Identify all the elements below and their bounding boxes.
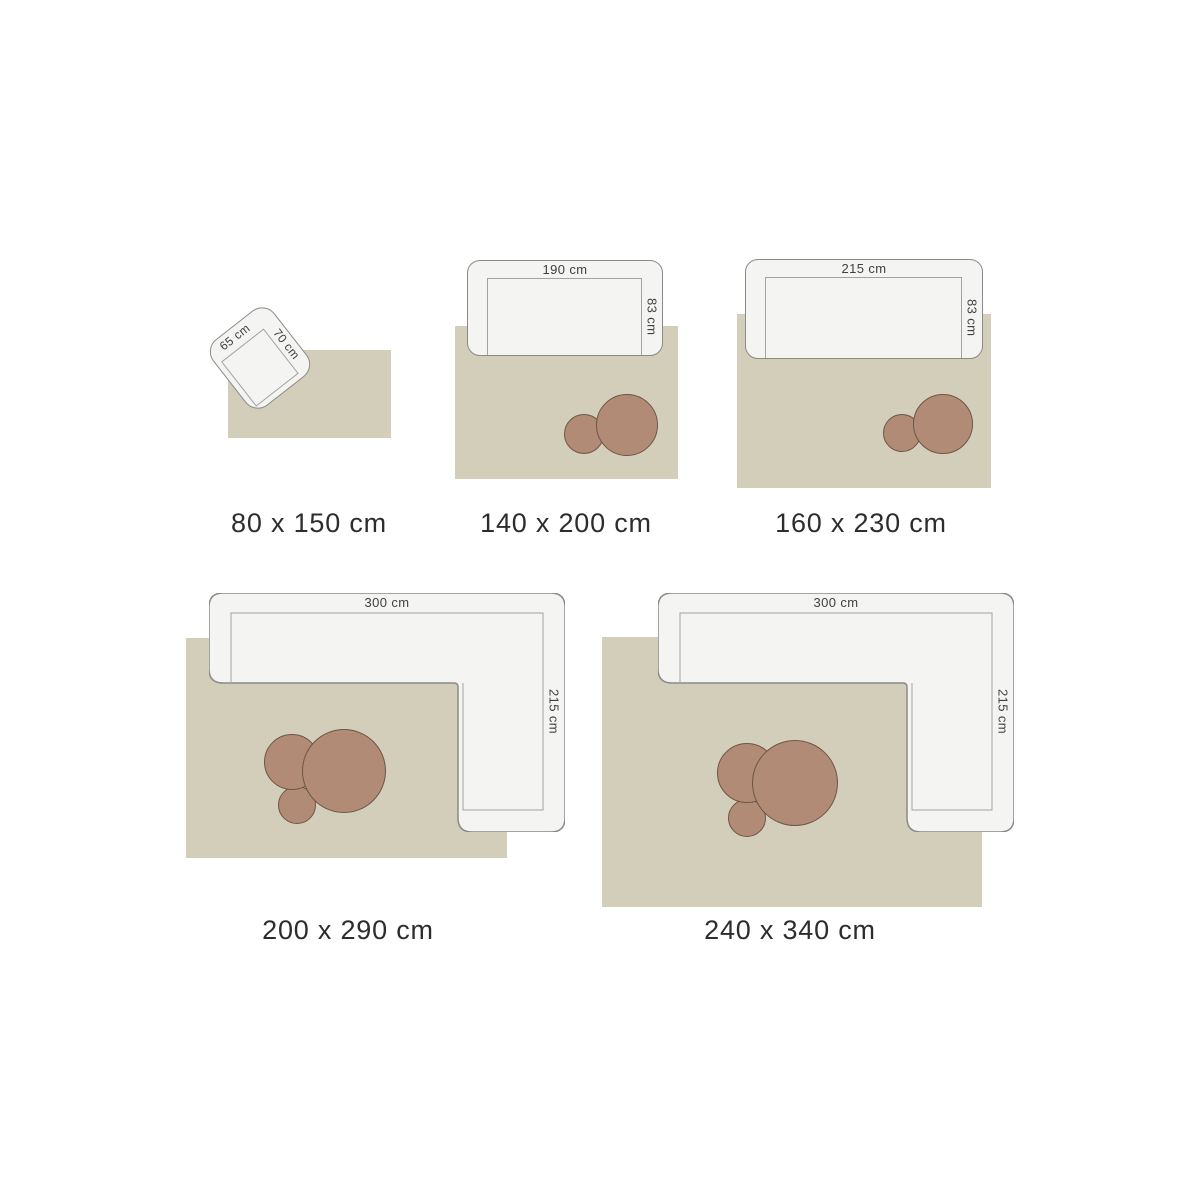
corner-sofa-shape	[209, 593, 565, 832]
sofa-seat-outline	[765, 277, 962, 358]
sofa-two-seater: 190 cm 83 cm	[467, 260, 663, 356]
pouf-large	[302, 729, 386, 813]
sofa-width-dimension-label: 215 cm	[746, 261, 982, 276]
sofa-depth-dimension-label: 83 cm	[962, 277, 982, 358]
sofa-three-seater: 215 cm 83 cm	[745, 259, 983, 359]
pouf-large	[913, 394, 973, 454]
sofa-width-dimension-label: 190 cm	[468, 262, 662, 277]
size-label-200x290: 200 x 290 cm	[228, 915, 468, 946]
corner-sofa-width-dimension-label: 300 cm	[209, 595, 565, 610]
size-label-140x200: 140 x 200 cm	[446, 508, 686, 539]
pouf-large	[752, 740, 838, 826]
corner-sofa-depth-dimension-label: 215 cm	[543, 613, 565, 810]
size-label-80x150: 80 x 150 cm	[189, 508, 429, 539]
corner-sofa-depth-dimension-label: 215 cm	[992, 613, 1014, 810]
size-label-240x340: 240 x 340 cm	[670, 915, 910, 946]
corner-sofa-shape	[658, 593, 1014, 832]
rug-size-guide: 65 cm 70 cm 80 x 150 cm 190 cm 83 cm 140…	[0, 0, 1200, 1200]
corner-sofa: 300 cm 215 cm	[209, 593, 565, 832]
corner-sofa-width-dimension-label: 300 cm	[658, 595, 1014, 610]
pouf-large	[596, 394, 658, 456]
sofa-depth-dimension-label: 83 cm	[642, 278, 662, 355]
corner-sofa: 300 cm 215 cm	[658, 593, 1014, 832]
sofa-seat-outline	[487, 278, 642, 355]
size-label-160x230: 160 x 230 cm	[741, 508, 981, 539]
